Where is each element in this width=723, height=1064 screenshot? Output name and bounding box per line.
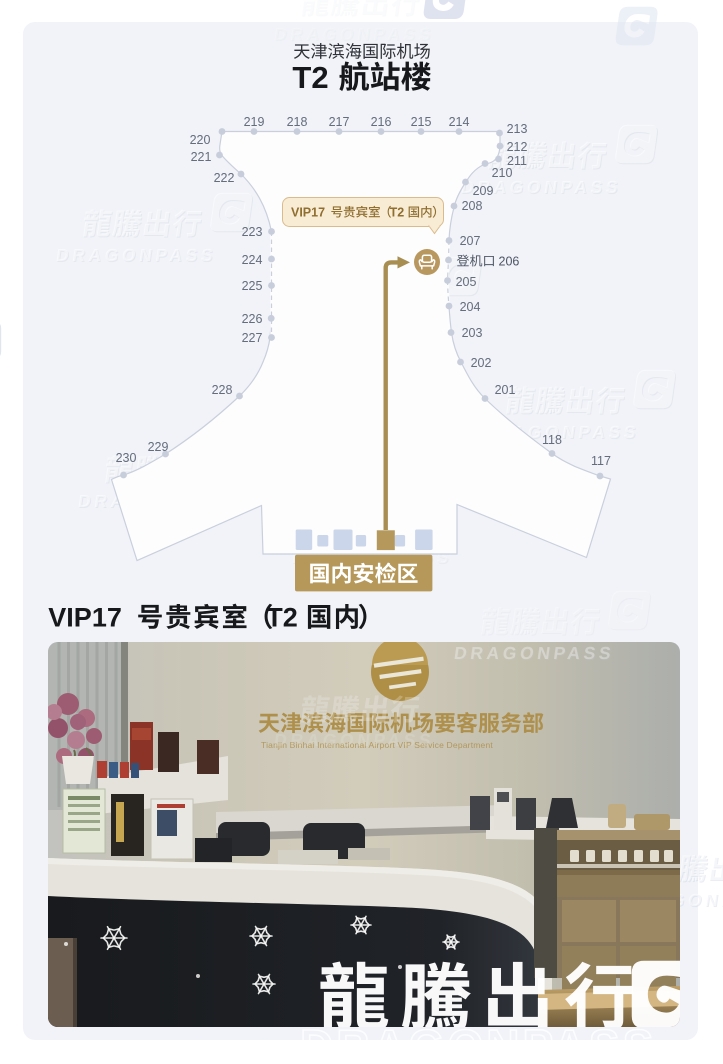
svg-text:DRAGONPASS: DRAGONPASS <box>55 245 218 265</box>
svg-text:226: 226 <box>242 312 263 326</box>
svg-text:208: 208 <box>462 199 483 213</box>
svg-text:215: 215 <box>411 115 432 129</box>
svg-text:214: 214 <box>449 115 470 129</box>
svg-text:202: 202 <box>471 356 492 370</box>
svg-text:210: 210 <box>492 166 513 180</box>
svg-text:207: 207 <box>460 234 481 248</box>
svg-text:213: 213 <box>507 122 528 136</box>
svg-text:DRAGONPASS: DRAGONPASS <box>453 643 616 663</box>
svg-text:T2: T2 <box>390 206 405 220</box>
svg-text:205: 205 <box>456 275 477 289</box>
svg-text:219: 219 <box>244 115 265 129</box>
svg-text:220: 220 <box>190 133 211 147</box>
svg-text:223: 223 <box>242 225 263 239</box>
svg-text:218: 218 <box>287 115 308 129</box>
svg-text:VIP17: VIP17 <box>291 206 325 220</box>
svg-text:228: 228 <box>212 383 233 397</box>
svg-text:203: 203 <box>462 326 483 340</box>
svg-text:117: 117 <box>591 454 611 468</box>
svg-text:212: 212 <box>507 140 528 154</box>
svg-text:DRAGONPASS: DRAGONPASS <box>300 1020 656 1064</box>
svg-text:230: 230 <box>116 451 137 465</box>
svg-text:225: 225 <box>242 279 263 293</box>
svg-text:222: 222 <box>214 171 235 185</box>
svg-text:229: 229 <box>148 440 169 454</box>
svg-text:224: 224 <box>242 253 263 267</box>
svg-text:217: 217 <box>329 115 350 129</box>
svg-text:209: 209 <box>473 184 494 198</box>
svg-text:204: 204 <box>460 300 481 314</box>
svg-text:201: 201 <box>495 383 516 397</box>
svg-text:206: 206 <box>499 255 520 269</box>
svg-text:DRAGONPASS: DRAGONPASS <box>273 24 436 44</box>
svg-text:118: 118 <box>542 433 562 447</box>
svg-text:T2: T2 <box>292 60 328 95</box>
svg-text:221: 221 <box>191 150 212 164</box>
svg-text:216: 216 <box>371 115 392 129</box>
svg-text:227: 227 <box>242 331 263 345</box>
